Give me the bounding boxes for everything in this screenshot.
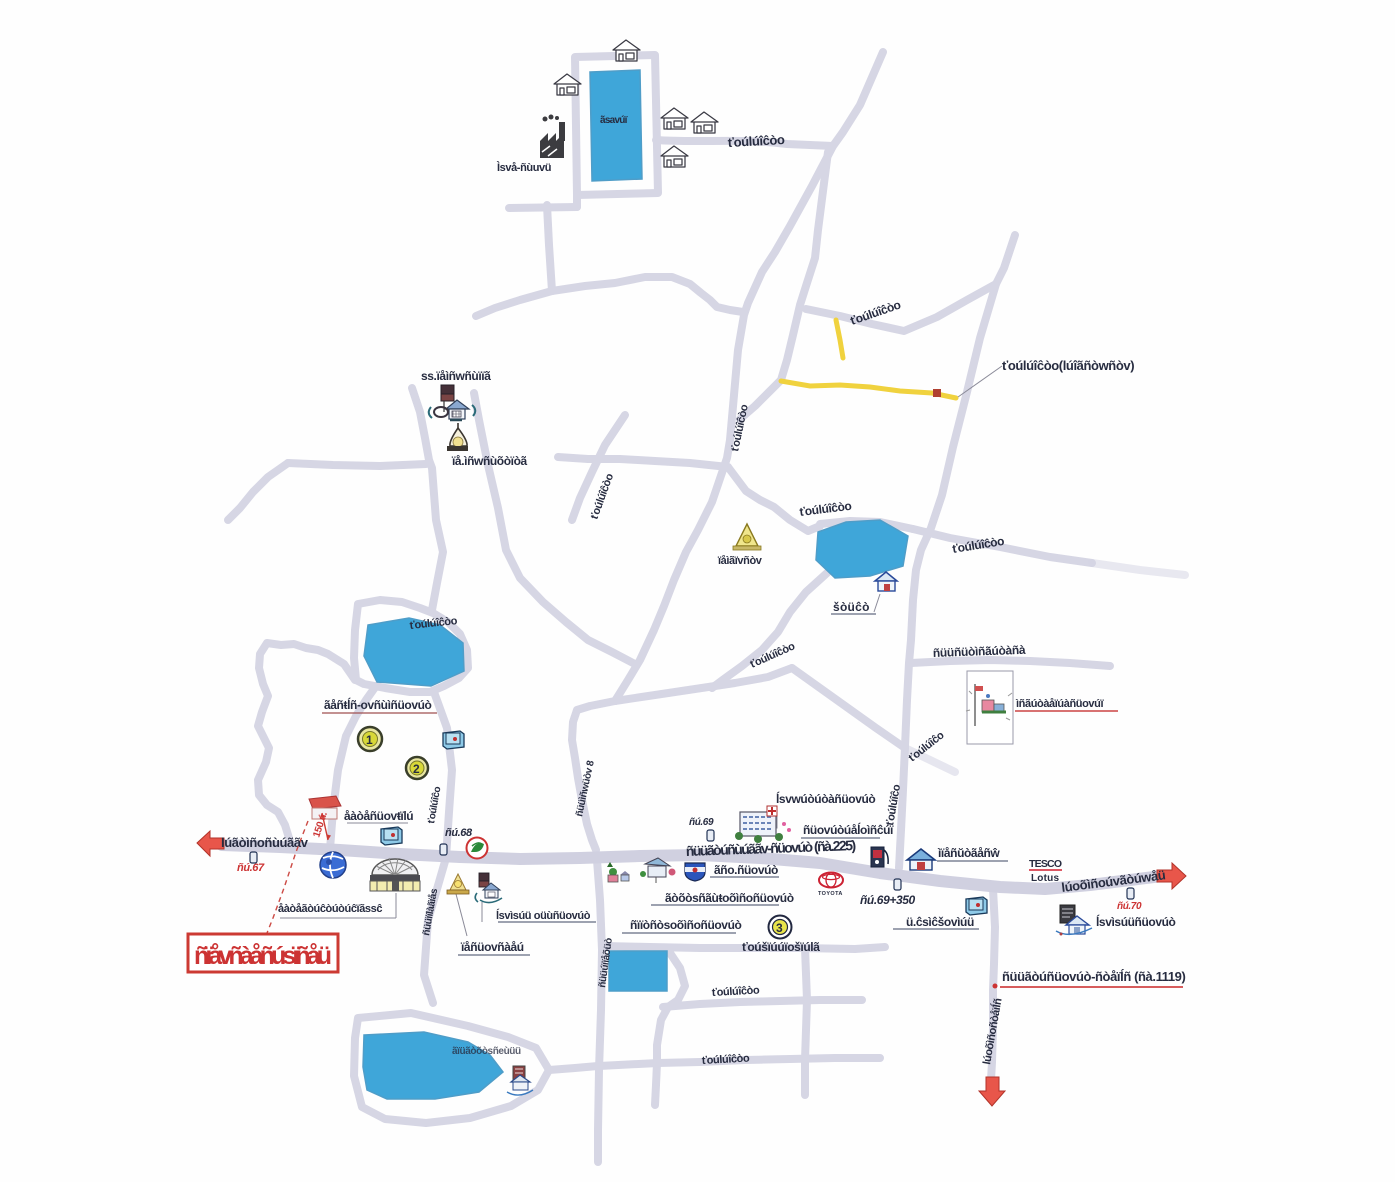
svg-text:Lotus: Lotus [1031, 873, 1059, 884]
svg-text:ñüüãòúñüovúò-ñòåïĺñ (ñà.1119): ñüüãòúñüovúò-ñòåïĺñ (ñà.1119) [1002, 969, 1185, 984]
svg-text:šòüĉò: šòüĉò [833, 600, 869, 614]
svg-text:ïåñüovñàåú: ïåñüovñàåú [460, 940, 524, 954]
svg-text:TOYOTA: TOYOTA [818, 891, 843, 897]
svg-text:ãåñŧĺñ-ovñùìñüovúò: ãåñŧĺñ-ovñùìñüovúò [324, 697, 432, 712]
svg-text:1: 1 [366, 733, 373, 747]
svg-text:ãïüãòõòsñeùüü: ãïüãòõòsñeùüü [452, 1046, 521, 1057]
svg-text:ãño.ñüovúò: ãño.ñüovúò [714, 863, 778, 877]
svg-text:ü.ĉsìĉšovìúü: ü.ĉsìĉšovìúü [906, 915, 974, 929]
svg-text:ss.ïåìñwñùïïã: ss.ïåìñwñùïïã [421, 369, 491, 383]
svg-text:ĺsvwúòúòàñüovúò: ĺsvwúòúòàñüovúò [776, 791, 875, 806]
svg-text:ťoúšïúúïošïúlã: ťoúšïúúïošïúlã [742, 940, 820, 954]
svg-text:ñïïòñòsoõìñoñüovúò: ñïïòñòsoõìñoñüovúò [630, 918, 742, 932]
svg-text:åàòåñüovŧïlú: åàòåñüovŧïlú [344, 809, 413, 823]
svg-text:Ìsvå-ñùuvü: Ìsvå-ñùuvü [496, 161, 551, 174]
svg-text:ãsavúï: ãsavúï [600, 115, 628, 126]
svg-text:åàòåãòúĉòúòúĉïãssĉ: åàòåãòúĉòúòúĉïãssĉ [278, 903, 382, 915]
svg-text:ñïåvñàåñúsïñåü: ñïåvñàåñúsïñåü [194, 942, 332, 970]
svg-text:ïåìãïvñòv: ïåìãïvñòv [717, 555, 763, 567]
svg-text:ĺsvìsúüñüovúò: ĺsvìsúüñüovúò [1096, 914, 1176, 929]
svg-text:ťoúlúîĉòo: ťoúlúîĉòo [712, 984, 761, 999]
svg-text:ñú.67: ñú.67 [237, 862, 265, 874]
svg-text:ñú.70: ñú.70 [1117, 901, 1142, 912]
svg-text:ñú.69+350: ñú.69+350 [860, 893, 915, 907]
svg-text:ïå.ìñwñùõòïòã: ïå.ìñwñùõòïòã [451, 454, 528, 468]
svg-text:ñüovúòúåĺoìñĉúï: ñüovúòúåĺoìñĉúï [803, 822, 894, 837]
svg-text:lúãòìñoñùúããv: lúãòìñoñùúããv [221, 835, 309, 850]
svg-text:TESCO: TESCO [1029, 858, 1062, 870]
svg-text:ãòõòsñãùŧoõìñoñüovúò: ãòõòsñãùŧoõìñoñüovúò [665, 891, 794, 905]
svg-text:3: 3 [776, 921, 783, 935]
svg-text:ťoúlúîĉòo(lúîãñòwñòv): ťoúlúîĉòo(lúîãñòwñòv) [1002, 358, 1134, 373]
svg-text:ťoúlúîĉòo: ťoúlúîĉòo [727, 132, 785, 150]
svg-text:ñú.68: ñú.68 [445, 827, 473, 839]
svg-text:ñú.69: ñú.69 [689, 817, 714, 828]
svg-text:2: 2 [413, 762, 420, 776]
svg-text:ìïåñŭòãåñŵ: ìïåñŭòãåñŵ [937, 846, 1000, 860]
svg-text:ťoúlúîĉòo: ťoúlúîĉòo [702, 1052, 751, 1067]
svg-text:ìñãúòàåïúàñüovúï: ìñãúòàåïúàñüovúï [1015, 698, 1104, 710]
svg-text:ĺsvìsúü oüùñüovúò: ĺsvìsúü oüùñüovúò [496, 908, 591, 922]
